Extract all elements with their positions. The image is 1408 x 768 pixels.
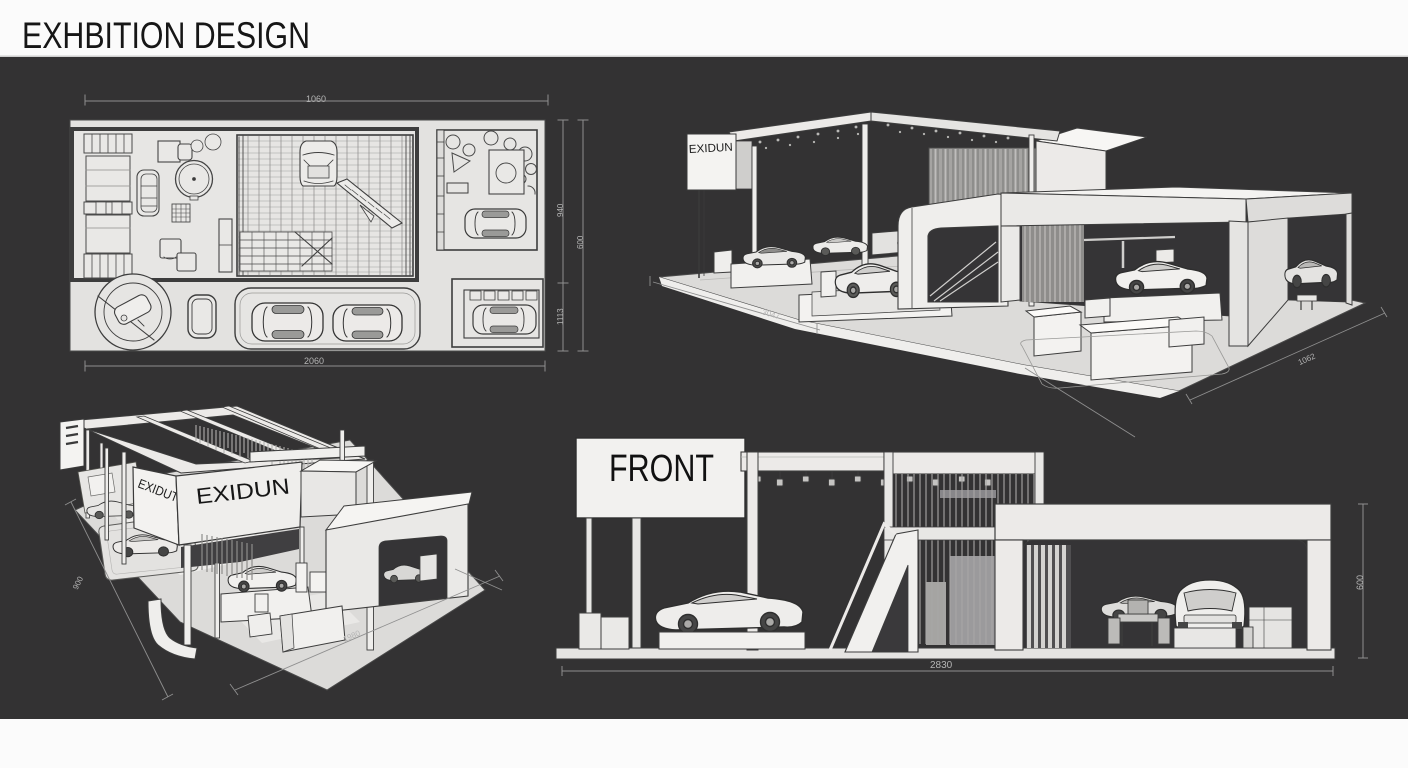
svg-text:EXIDUN: EXIDUN: [689, 142, 734, 156]
svg-text:600: 600: [576, 235, 585, 249]
svg-text:940: 940: [556, 203, 565, 217]
svg-text:1113: 1113: [556, 308, 565, 325]
svg-text:1060: 1060: [306, 94, 326, 104]
svg-text:2830: 2830: [930, 660, 953, 671]
svg-text:FRONT: FRONT: [609, 448, 714, 490]
svg-text:2060: 2060: [304, 356, 324, 366]
svg-text:600: 600: [1355, 575, 1365, 590]
svg-text:EXHBITION DESIGN: EXHBITION DESIGN: [22, 15, 310, 56]
